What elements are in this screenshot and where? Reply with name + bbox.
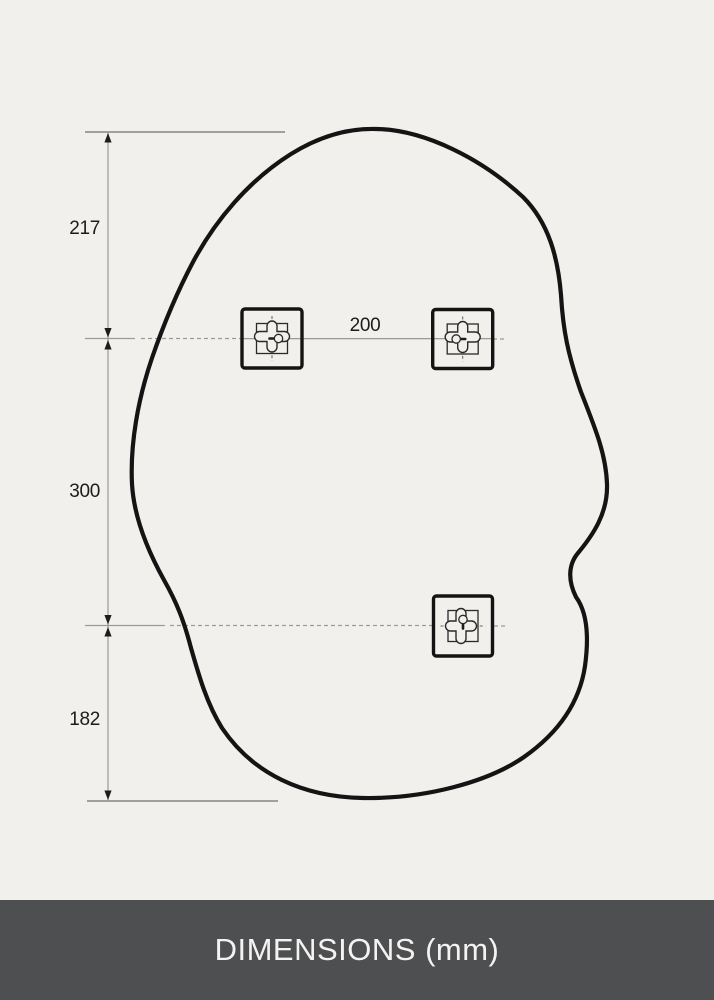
arrow-down-upper-tick bbox=[104, 328, 111, 338]
arrow-down-bottom bbox=[104, 791, 111, 801]
footer-bar: DIMENSIONS (mm) bbox=[0, 900, 714, 1000]
dimension-diagram: 217 300 182 200 DIMENSIONS (mm) bbox=[0, 0, 714, 1000]
arrow-up-lower-tick bbox=[104, 627, 111, 637]
arrow-down-lower-tick bbox=[104, 615, 111, 625]
dimension-label-middle-spacing: 300 bbox=[69, 481, 100, 502]
mirror-outline bbox=[132, 129, 607, 798]
mirror-dimension-drawing: 217 300 182 200 bbox=[0, 0, 714, 900]
wall-bracket-icon-lower bbox=[434, 596, 493, 656]
dimension-label-bottom-offset: 182 bbox=[69, 709, 100, 730]
arrow-up-upper-tick bbox=[104, 340, 111, 350]
dimension-label-hanger-spacing: 200 bbox=[350, 315, 381, 336]
arrow-up-top bbox=[104, 133, 111, 143]
footer-title: DIMENSIONS (mm) bbox=[215, 932, 500, 968]
dimension-label-top-offset: 217 bbox=[69, 218, 100, 239]
